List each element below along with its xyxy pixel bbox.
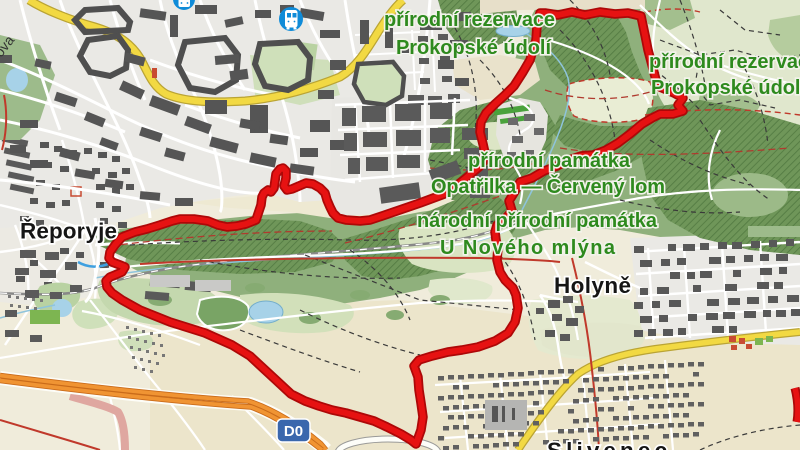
svg-text:U Nového mlýna: U Nového mlýna xyxy=(440,237,616,259)
svg-text:Holyně: Holyně xyxy=(554,273,631,298)
svg-text:Řeporyje: Řeporyje xyxy=(20,219,117,244)
svg-text:Opatřilka — Červený lom: Opatřilka — Červený lom xyxy=(431,174,665,198)
svg-text:přírodní památka: přírodní památka xyxy=(468,150,631,172)
svg-text:národní přírodní památka: národní přírodní památka xyxy=(417,210,658,232)
svg-text:přírodní rezervace: přírodní rezervace xyxy=(384,9,555,31)
svg-text:Prokopské údolí: Prokopské údolí xyxy=(651,77,800,99)
svg-text:Prokopské údolí: Prokopské údolí xyxy=(396,37,552,59)
svg-text:D0: D0 xyxy=(284,423,303,440)
svg-text:přírodní rezervace: přírodní rezervace xyxy=(649,51,800,73)
